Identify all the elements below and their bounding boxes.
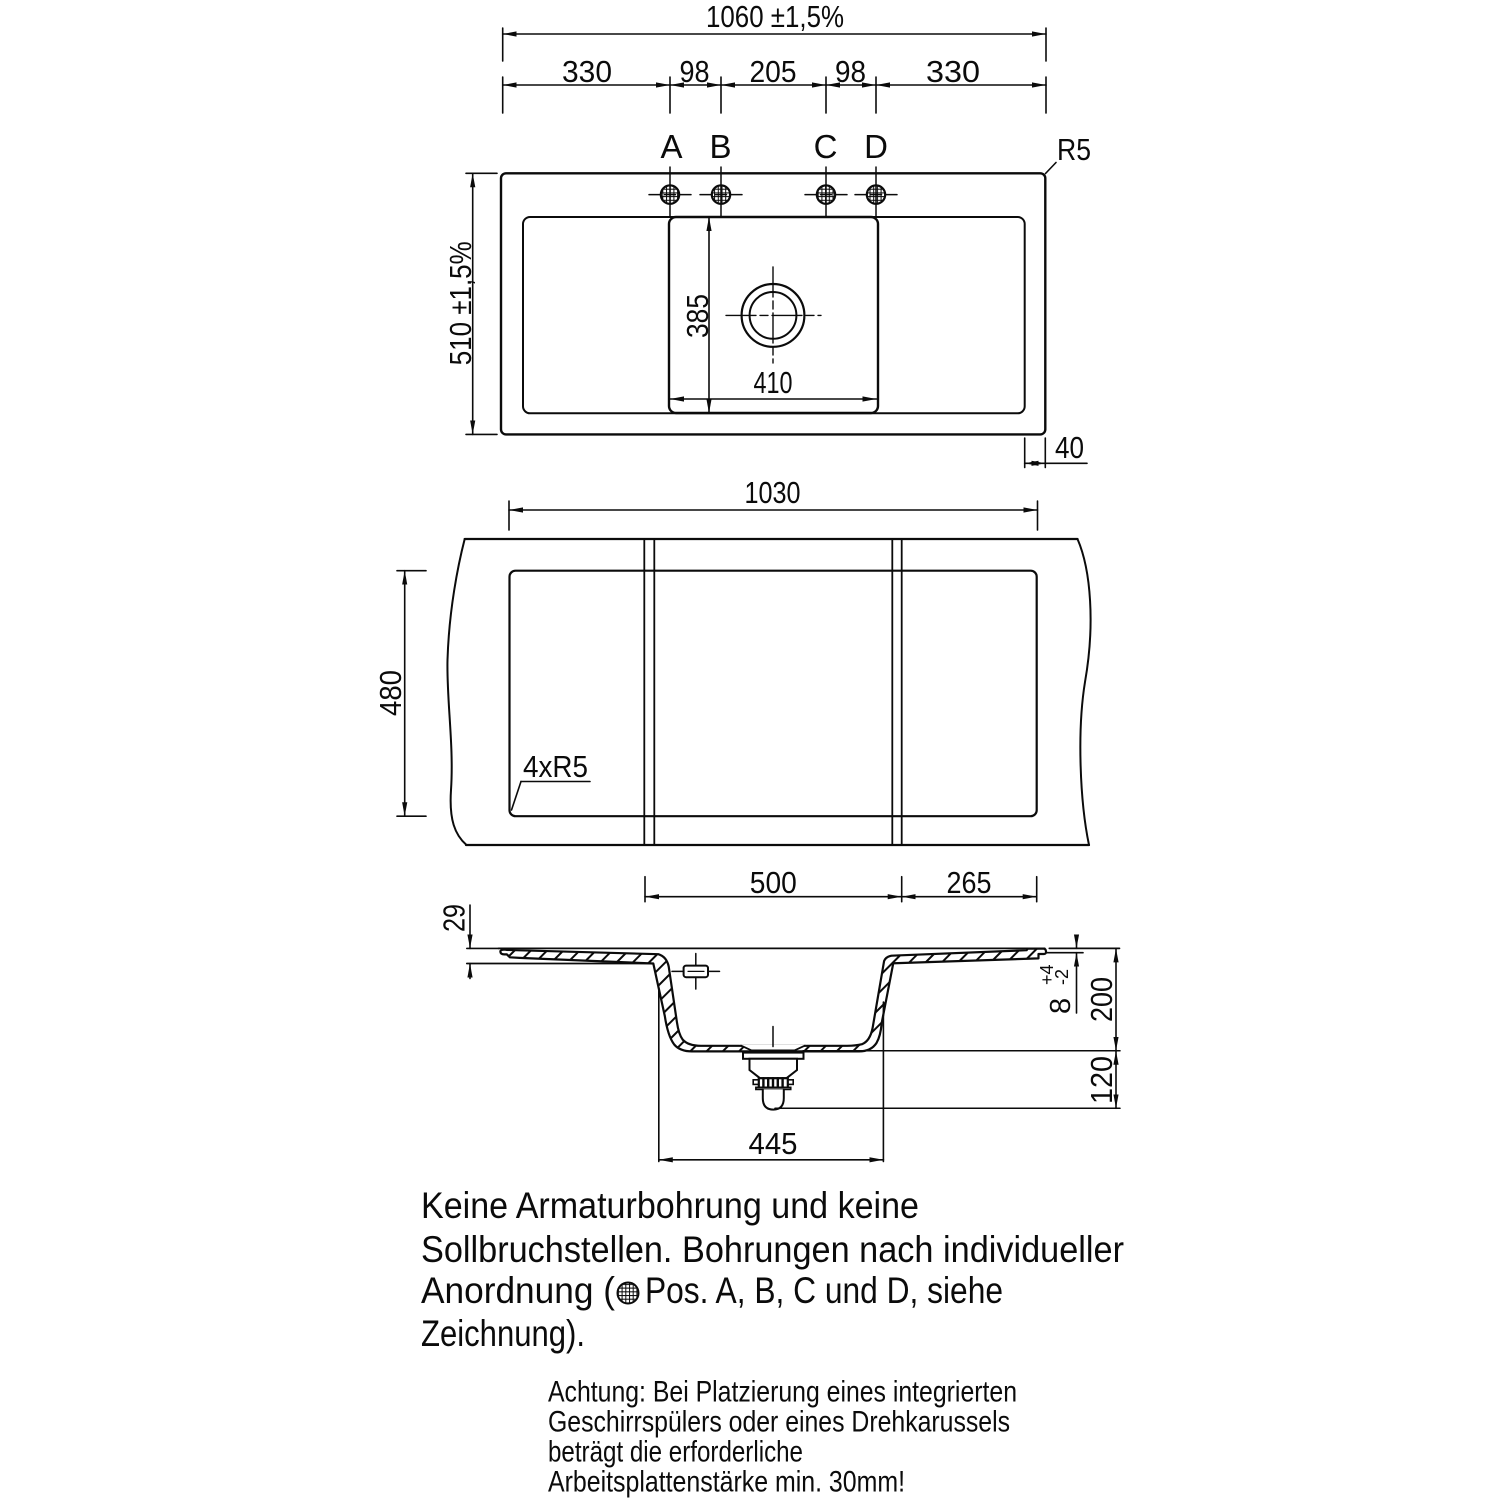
svg-text:265: 265	[947, 865, 992, 900]
svg-text:40: 40	[1055, 430, 1084, 465]
svg-text:C: C	[814, 128, 838, 165]
svg-text:1030: 1030	[745, 475, 801, 510]
svg-text:98: 98	[835, 54, 866, 89]
svg-text:Arbeitsplattenstärke min. 30mm: Arbeitsplattenstärke min. 30mm!	[548, 1466, 905, 1499]
svg-text:Zeichnung).: Zeichnung).	[421, 1313, 585, 1354]
svg-text:29: 29	[437, 904, 472, 932]
svg-text:-2: -2	[1052, 969, 1072, 985]
svg-text:205: 205	[750, 54, 797, 89]
svg-text:480: 480	[373, 670, 408, 716]
svg-text:beträgt die erforderliche: beträgt die erforderliche	[548, 1436, 803, 1469]
svg-text:445: 445	[749, 1126, 798, 1161]
svg-text:Sollbruchstellen. Bohrungen na: Sollbruchstellen. Bohrungen nach individ…	[421, 1229, 1124, 1270]
svg-text:Pos. A, B, C und D, siehe: Pos. A, B, C und D, siehe	[645, 1270, 1003, 1311]
svg-text:1060 ±1,5%: 1060 ±1,5%	[706, 0, 844, 34]
svg-text:D: D	[864, 128, 888, 165]
svg-text:330: 330	[926, 54, 980, 89]
svg-text:510 ±1,5%: 510 ±1,5%	[443, 241, 478, 365]
svg-text:98: 98	[680, 54, 710, 89]
svg-text:Achtung: Bei Platzierung eines: Achtung: Bei Platzierung eines integrier…	[548, 1376, 1017, 1409]
svg-text:500: 500	[750, 865, 797, 900]
svg-text:Geschirrspülers oder eines Dre: Geschirrspülers oder eines Drehkarussels	[548, 1406, 1010, 1439]
svg-text:A: A	[660, 128, 682, 165]
svg-text:4xR5: 4xR5	[523, 749, 588, 784]
svg-text:330: 330	[562, 54, 612, 89]
svg-text:410: 410	[754, 365, 793, 400]
svg-text:200: 200	[1084, 977, 1119, 1022]
svg-text:385: 385	[680, 294, 715, 338]
svg-text:Keine Armaturbohrung und keine: Keine Armaturbohrung und keine	[421, 1185, 919, 1226]
svg-text:120: 120	[1084, 1056, 1119, 1104]
svg-text:R5: R5	[1057, 132, 1091, 167]
svg-text:B: B	[709, 128, 731, 165]
svg-text:Anordnung (: Anordnung (	[421, 1270, 616, 1311]
svg-text:8: 8	[1045, 998, 1077, 1014]
